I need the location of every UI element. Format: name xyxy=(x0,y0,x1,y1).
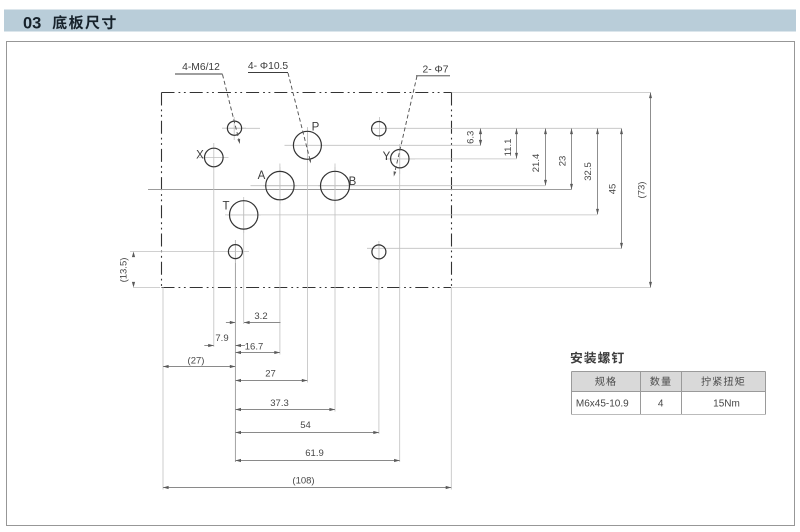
svg-text:15Nm: 15Nm xyxy=(713,399,740,410)
svg-text:11.1: 11.1 xyxy=(503,139,514,157)
svg-text:3.2: 3.2 xyxy=(254,311,267,322)
svg-text:P: P xyxy=(312,122,320,134)
svg-text:(73): (73) xyxy=(637,182,648,199)
svg-text:03: 03 xyxy=(23,14,41,32)
svg-text:6.3: 6.3 xyxy=(466,131,477,144)
svg-text:T: T xyxy=(222,201,229,213)
svg-text:27: 27 xyxy=(265,369,276,380)
svg-text:Y: Y xyxy=(383,151,391,163)
svg-text:21.4: 21.4 xyxy=(531,154,542,173)
svg-text:A: A xyxy=(258,170,266,182)
svg-text:4-M6/12: 4-M6/12 xyxy=(182,62,220,73)
svg-text:2- Φ7: 2- Φ7 xyxy=(423,64,449,75)
svg-text:23: 23 xyxy=(558,156,569,167)
svg-text:(27): (27) xyxy=(188,356,205,367)
svg-text:(13.5): (13.5) xyxy=(119,258,130,283)
svg-text:54: 54 xyxy=(300,420,311,431)
svg-text:(108): (108) xyxy=(292,476,314,487)
svg-text:4- Φ10.5: 4- Φ10.5 xyxy=(248,61,289,72)
svg-text:32.5: 32.5 xyxy=(583,162,594,181)
svg-text:7.9: 7.9 xyxy=(215,333,228,344)
svg-text:M6x45-10.9: M6x45-10.9 xyxy=(576,399,629,410)
svg-text:4: 4 xyxy=(658,399,664,410)
svg-text:45: 45 xyxy=(608,184,619,195)
svg-text:16.7: 16.7 xyxy=(245,342,264,353)
svg-text:61.9: 61.9 xyxy=(305,448,324,459)
svg-text:B: B xyxy=(349,176,357,188)
svg-text:37.3: 37.3 xyxy=(270,398,289,409)
svg-text:X: X xyxy=(196,150,204,162)
